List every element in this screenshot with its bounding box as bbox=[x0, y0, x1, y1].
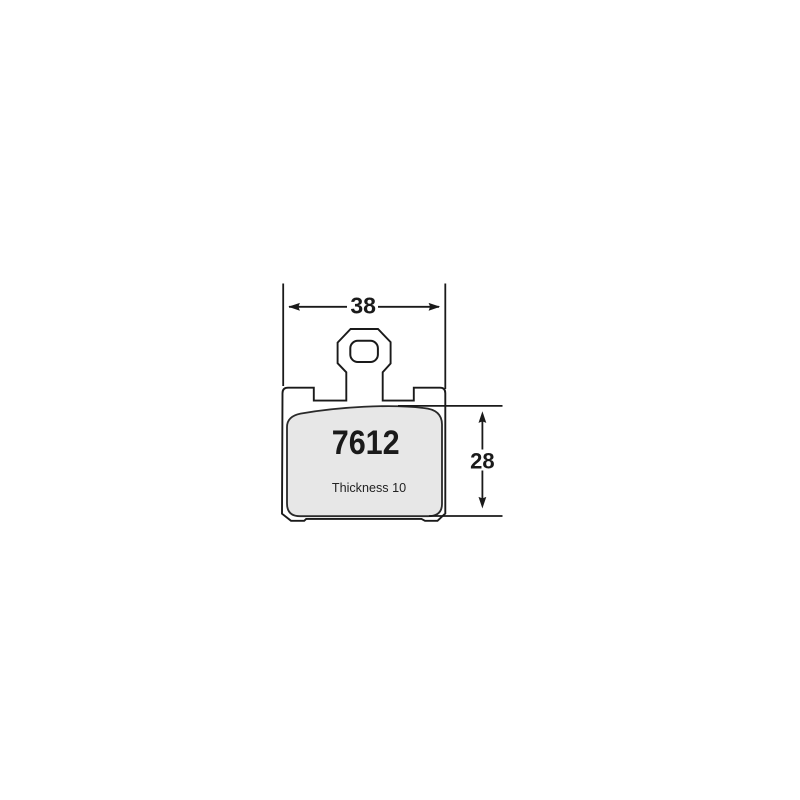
svg-text:38: 38 bbox=[350, 292, 376, 318]
svg-text:Thickness 10: Thickness 10 bbox=[332, 481, 406, 495]
svg-text:7612: 7612 bbox=[332, 424, 400, 462]
svg-text:28: 28 bbox=[470, 448, 494, 473]
